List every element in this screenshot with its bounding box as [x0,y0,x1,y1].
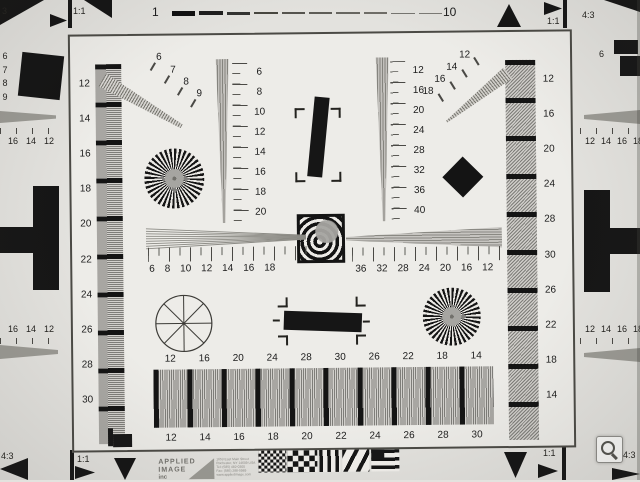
sweep-label: 10 [180,264,191,274]
corner-bar-br [562,447,566,480]
scale-dash [282,12,305,14]
edge-label: 16 [617,325,627,334]
sweep-label: 16 [243,264,254,274]
resolution-label: 14 [199,433,210,443]
wedge-label: 18 [422,87,433,97]
bottom-row-bottom-labels: 12141618202224262830 [154,428,494,446]
resolution-label: 26 [545,285,556,295]
resolution-label: 16 [199,354,210,364]
wedge-label: 7 [170,66,176,76]
resolution-label: 28 [301,353,312,363]
resolution-label: 22 [545,320,556,330]
resolution-label: 16 [543,109,554,119]
wedge-label: 12 [413,66,424,76]
resolution-label: 30 [335,353,346,363]
resolution-label: 14 [471,351,482,361]
edge-label: 14 [601,137,611,146]
wedge-tick [164,75,170,84]
corner-arrow-tl [50,14,67,27]
sweep-label: 12 [482,263,493,273]
edge-label: 12 [585,325,595,334]
resolution-label: 22 [403,352,414,362]
neighbor-wedge-right-top [584,110,640,124]
resolution-label: 30 [545,250,556,260]
resolution-label: 20 [233,354,244,364]
resolution-label: 26 [81,325,92,335]
sweep-label: 32 [376,264,387,274]
scale-dash [227,12,250,15]
edge-label: 16 [617,137,627,146]
wedge-label: 10 [254,108,265,118]
wedge-label: 8 [257,88,263,98]
resolution-label: 30 [471,430,482,440]
wedge-label: 28 [413,146,424,156]
wedge-label: 40 [414,206,425,216]
registration-triangle-tl [84,0,112,18]
wedge-tick [150,62,156,71]
resolution-label: 12 [543,74,554,84]
wedge-label: 14 [446,63,457,73]
fiducial-mark [295,108,305,118]
pattern-black-block [371,449,384,459]
resolution-label: 14 [79,114,90,124]
scale-dash [391,13,414,14]
fiducial-mark [278,297,288,307]
corner-bar-bl [70,450,74,480]
magnifier-icon-handle [611,453,618,460]
segmented-circle [153,292,216,355]
magnifier-zoom-button[interactable] [596,436,623,463]
resolution-label: 14 [546,391,557,401]
neighbor-square-labels: 6789 [0,50,10,104]
neighbor-ticks-right-top [580,128,640,134]
wedge-tick [438,93,444,101]
right-resolution-blocks [505,60,539,440]
edge-label: 12 [44,137,54,146]
resolution-label: 26 [403,431,414,441]
registration-triangle-bl-down [114,458,136,480]
fiducial-mark [356,335,366,345]
registration-triangle-tr-up [497,4,521,27]
registration-label-bl: 1:1 [77,455,90,464]
neighbor-tbar-right-arm [610,228,640,254]
registration-triangle-bl-neighbor [0,458,28,480]
address-line: www.appliedimage.com [216,473,255,477]
sweep-label: 14 [222,264,233,274]
scale-dash [419,13,442,14]
neighbor-square-label: 8 [2,79,7,88]
siemens-star-bottom-right [422,287,481,346]
registration-label-tr: 1:1 [547,17,560,26]
neighbor-ticks-left-bottom [0,338,60,344]
diagonal-stripes-pattern [342,450,369,472]
neighbor-ratio-tr: 4:3 [582,11,595,20]
wedge-label: 20 [413,106,424,116]
neighbor-ticks-right-bottom [580,338,640,344]
scale-dash [172,11,195,16]
corner-arrow-br [538,464,558,478]
fiducial-dash [363,321,370,323]
resolution-label: 28 [82,361,93,371]
resolution-label: 12 [165,355,176,365]
wedge-right-major-ticks [352,246,502,262]
wedge-label: 18 [255,188,266,198]
fiducial-mark [278,335,288,345]
neighbor-ratio-partial: 3 [2,7,7,16]
neighbor-labels-left-bottom: 18161412 [0,323,58,335]
resolution-label: 28 [437,431,448,441]
logo-line1: APPLIED [158,458,195,466]
sweep-label: 24 [419,264,430,274]
neighbor-square-label: 7 [2,66,7,75]
scale-dash [199,11,222,15]
edge-label: 14 [26,137,36,146]
fiducial-mark [331,172,341,182]
resolution-label: 28 [544,215,555,225]
right-column-labels: 12162024283026221814 [539,62,561,414]
sweep-label: 20 [440,264,451,274]
sweep-label: 12 [201,264,212,274]
neighbor-tbar-left-arm [0,227,33,253]
wedge-label: 12 [254,128,265,138]
neighbor-notch-block-a [614,40,638,54]
resolution-label: 24 [267,353,278,363]
fiducial-mark [356,297,366,307]
sweep-label: 16 [461,263,472,273]
vertical-wedge-right [374,57,392,221]
left-column-labels: 12141618202224262830 [76,66,96,418]
resolution-label: 20 [80,220,91,230]
edge-label: 12 [44,325,54,334]
wedge-tick [177,87,183,96]
sweep-label: 18 [264,263,275,273]
edge-label: 14 [601,325,611,334]
registration-label-tl: 1:1 [73,7,86,16]
checkerboard-coarse-pattern [287,450,317,472]
scale-dash [309,12,332,14]
wedge-right-labels: 36322824201612 [350,262,498,276]
left-resolution-blocks [95,64,125,444]
corner-arrow-tr [544,2,562,15]
registration-triangle-br-down [504,452,527,478]
wedge-label: 16 [255,168,266,178]
wedge-tick [190,99,196,108]
vertical-wedge-right-major-ticks [390,61,407,221]
edge-label: 16 [8,137,18,146]
corner-bar-tr [563,0,567,28]
corner-bar-tl [68,0,72,28]
resolution-label: 12 [79,79,90,89]
wedge-label: 24 [413,126,424,136]
test-chart-photo: { "colors": {"paper":"#edece8","outer":"… [0,0,640,480]
neighbor-tilted-square-left [18,52,64,100]
resolution-label: 22 [335,432,346,442]
checkerboard-fine-pattern [258,450,286,472]
sweep-left-labels: 681012141618 [144,262,280,275]
logo-address: 1653 East Main StreetRochester, NY 14609… [216,458,255,477]
frame-mark-block [113,434,132,447]
neighbor-wedge-left-top [0,111,56,123]
wedge-label: 16 [434,75,445,85]
resolution-label: 18 [546,356,557,366]
resolution-label: 18 [437,352,448,362]
registration-triangle-tr-neighbor [604,0,640,12]
bottom-row-top-labels: 12162024283026221814 [153,350,493,366]
tilted-horizontal-bar [284,311,363,333]
neighbor-wedge-right-bottom [584,348,640,362]
fiducial-mark [331,108,341,118]
neighbor-labels-right-top: 12141618 [582,135,640,147]
resolution-label: 20 [543,145,554,155]
edge-label: 12 [585,137,595,146]
wedge-label: 32 [414,166,425,176]
wedge-label: 20 [255,208,266,218]
sweep-label: 28 [398,264,409,274]
wedge-label: 14 [254,148,265,158]
edge-label: 16 [8,325,18,334]
resolution-label: 30 [82,396,93,406]
wedge-tick [450,81,456,89]
neighbor-ticks-left-top [0,128,60,134]
neighbor-ratio-br: 4:3 [623,451,636,460]
sweep-label: 6 [149,265,155,275]
bottom-resolution-blocks [153,366,494,428]
resolution-label: 24 [81,290,92,300]
resolution-label: 16 [233,433,244,443]
neighbor-wedge-label: 6 [599,50,604,59]
resolution-label: 24 [369,431,380,441]
black-diamond [442,157,483,198]
resolution-label: 16 [79,149,90,159]
fiducial-dash [273,319,280,321]
scale-dash [254,12,277,15]
sweep-label: 36 [355,265,366,275]
wedge-label: 9 [196,89,202,99]
sweep-left-major-ticks [148,246,310,262]
resolution-label: 22 [81,255,92,265]
neighbor-labels-left-top: 18161412 [0,135,58,147]
neighbor-tbar-right-stem [584,190,610,292]
registration-triangle-br-neighbor [612,468,640,480]
wedge-label: 36 [414,186,425,196]
resolution-label: 12 [165,434,176,444]
vertical-wedge-left-major-ticks [232,63,249,223]
vertical-wedge-left-labels: 68101214161820 [250,63,270,223]
registration-label-br: 1:1 [543,449,556,458]
edge-label: 14 [26,325,36,334]
vertical-bars-pattern [319,450,340,472]
neighbor-square-label: 9 [2,93,7,102]
top-scale-dashes [172,8,442,18]
applied-image-logo: APPLIED IMAGE inc [158,458,196,481]
neighbor-square-label: 6 [2,52,7,61]
wedge-label: 8 [183,77,189,87]
tilted-vertical-bar [307,97,329,178]
resolution-label: 24 [544,180,555,190]
logo-line3: inc [158,474,195,481]
top-scale-end-label: 10 [443,6,456,18]
scale-dash [336,12,359,14]
neighbor-ratio-bl: 4:3 [1,452,14,461]
fiducial-mark [295,172,305,182]
resolution-label: 18 [267,432,278,442]
neighbor-tbar-left-stem [33,186,59,290]
corner-arrow-bl [75,466,95,479]
wedge-label: 6 [256,68,262,78]
neighbor-labels-right-bottom: 12141618 [582,323,640,335]
diagonal-wedge-tr [442,68,512,128]
scale-dash [364,12,387,14]
resolution-label: 18 [80,185,91,195]
top-scale-start-label: 1 [152,6,159,18]
sweep-label: 8 [165,265,171,275]
wedge-label: 12 [459,50,470,60]
wedge-tick [462,69,468,77]
siemens-star-top-left [144,148,205,209]
wedge-label: 6 [156,53,162,63]
iso12233-chart-frame: 12141618202224262830 1216202428302622181… [68,29,576,452]
resolution-label: 20 [301,432,312,442]
wedge-tick [474,57,480,65]
vertical-wedge-left [214,59,232,223]
resolution-label: 26 [369,352,380,362]
neighbor-wedge-left-bottom [0,345,58,359]
